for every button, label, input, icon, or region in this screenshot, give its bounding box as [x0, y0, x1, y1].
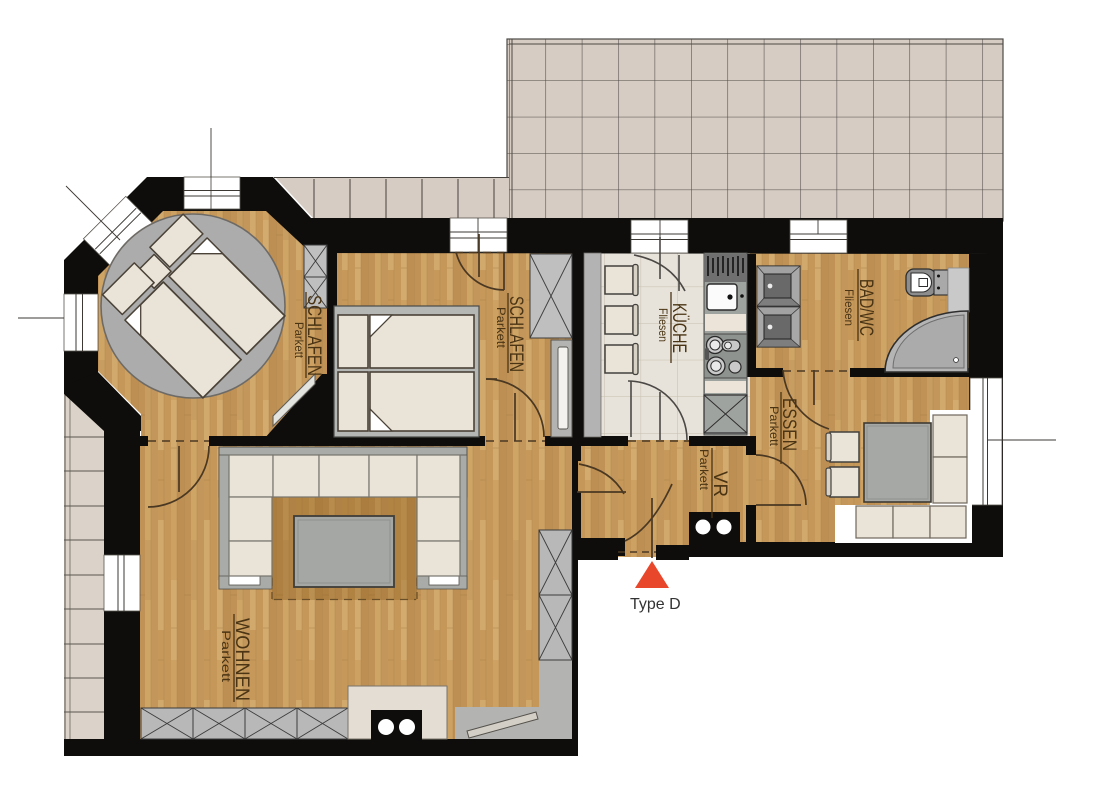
svg-text:Parkett: Parkett [292, 322, 306, 359]
svg-text:BAD/WC: BAD/WC [855, 279, 877, 336]
svg-text:VR: VR [709, 471, 731, 497]
svg-text:Fliesen: Fliesen [656, 308, 670, 342]
svg-text:Parkett: Parkett [767, 406, 781, 447]
svg-text:Parkett: Parkett [697, 449, 711, 491]
svg-text:WOHNEN: WOHNEN [231, 618, 253, 701]
svg-text:Fliesen: Fliesen [842, 289, 856, 326]
svg-text:KÜCHE: KÜCHE [668, 303, 690, 353]
svg-text:Type D: Type D [630, 596, 681, 613]
svg-text:Parkett: Parkett [494, 307, 508, 349]
svg-text:Parkett: Parkett [219, 630, 233, 683]
